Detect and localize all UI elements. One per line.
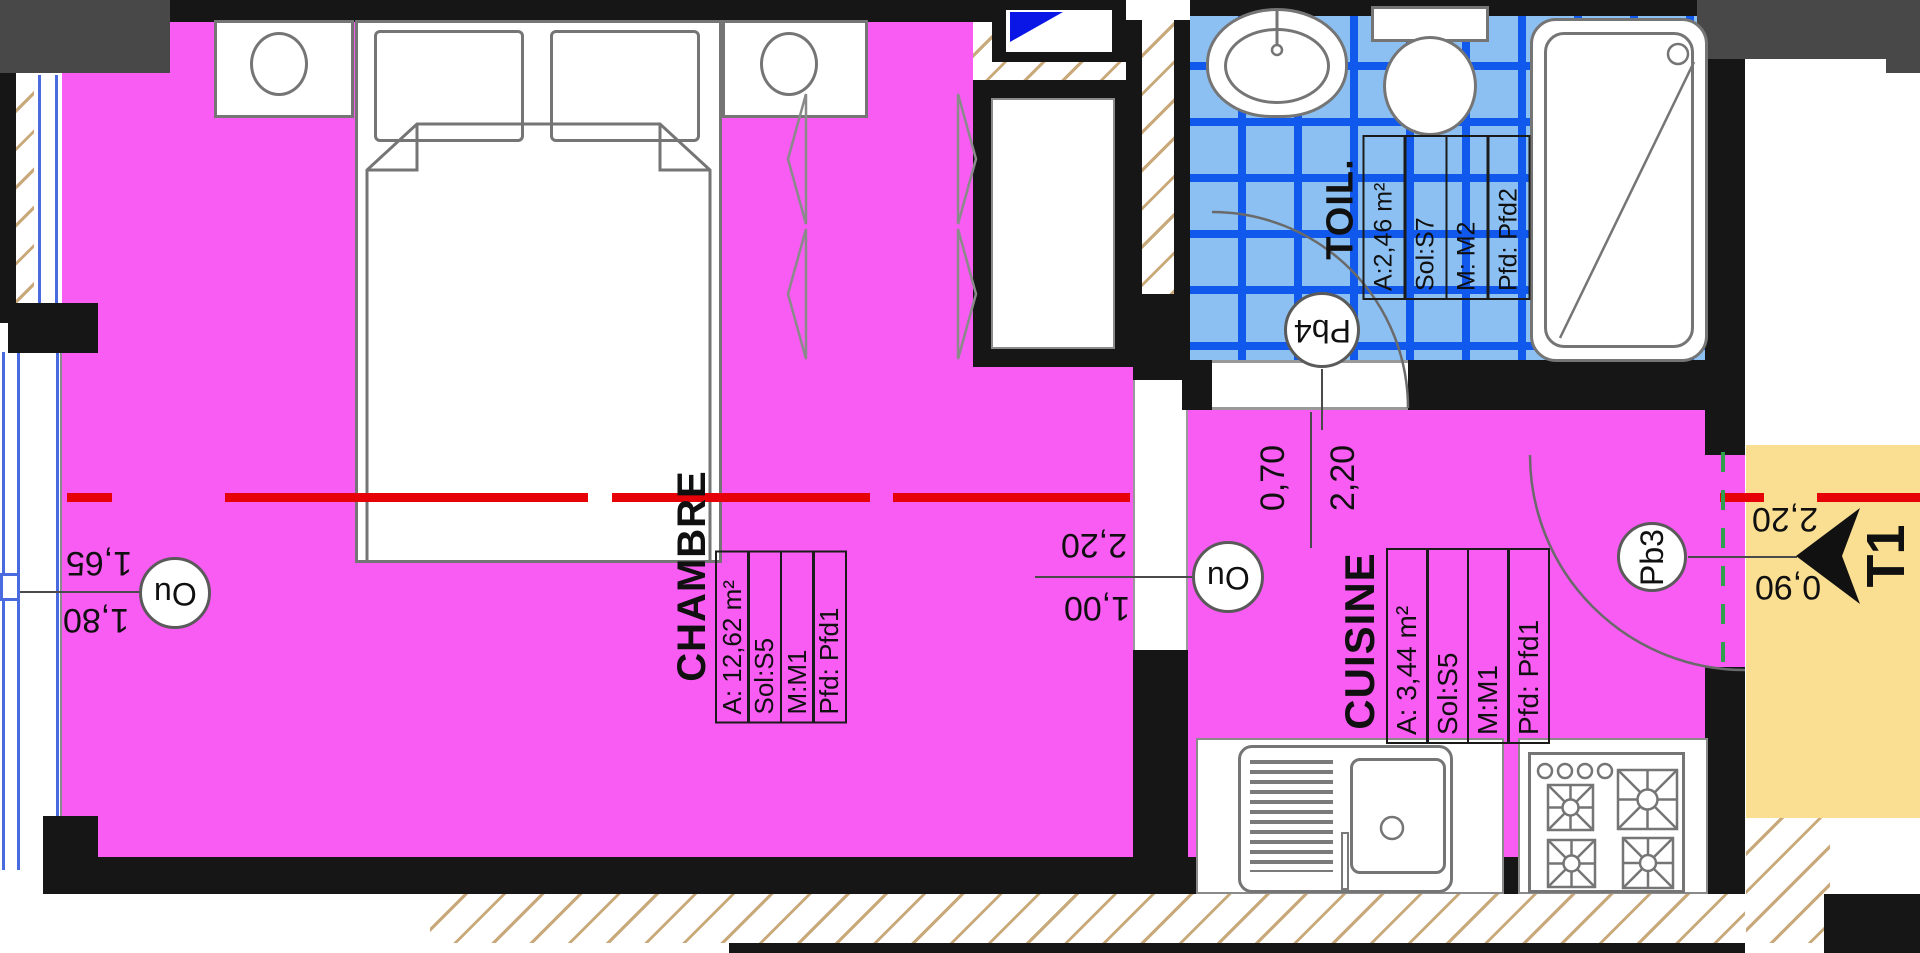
- marker-label: Ou: [1207, 559, 1250, 596]
- marker-label: Pb3: [1634, 529, 1671, 586]
- window-frame-line: [17, 352, 20, 870]
- wall-left-corner: [8, 303, 98, 353]
- marker-label: Pb4: [1294, 312, 1351, 349]
- door-axis-line: [1721, 452, 1725, 668]
- marker-pb4: Pb4: [1284, 292, 1360, 368]
- wall-top: [170, 0, 1006, 22]
- room-name: TOIL.: [1317, 118, 1364, 300]
- dimension-entrance-below: 0,90: [1747, 564, 1829, 610]
- room-plafond: Pfd: Pfd1: [812, 550, 847, 723]
- room-area: A: 3,44 m²: [1386, 548, 1429, 744]
- sink-drainboard: [1250, 760, 1333, 872]
- room-label-toilette: TOIL. A:2,46 m² Sol:S7 M: M2 Pfd: Pfd2: [1317, 118, 1540, 300]
- room-label-cuisine: CUISINE A: 3,44 m² Sol:S5 M:M1 Pfd: Pfd1: [1332, 538, 1560, 744]
- room-name: CUISINE: [1332, 538, 1388, 744]
- marker-label: Ou: [154, 575, 197, 612]
- wall-left-upper: [0, 73, 16, 323]
- wall-door-strip-lower: [1133, 650, 1188, 894]
- section-line: [225, 493, 588, 502]
- washbasin-bowl: [1224, 28, 1330, 104]
- floor-plan: Ou Ou Pb4 Pb3 1,65 1,80 2,20 1,00 0,70 2…: [0, 0, 1920, 953]
- dimension-door-toilette-right: 2,20: [1313, 410, 1373, 546]
- neighbor-block-corner-right: [1886, 0, 1920, 73]
- marker-pb3: Pb3: [1617, 522, 1687, 592]
- room-mur: M: M2: [1445, 135, 1489, 300]
- marker-ou-window: Ou: [139, 557, 211, 629]
- dimension-window-left-below: 1,80: [53, 598, 139, 642]
- room-area: A:2,46 m²: [1362, 135, 1406, 300]
- dimension-door-toilette-left: 0,70: [1243, 410, 1303, 546]
- pillow-right: [550, 30, 700, 142]
- room-plafond: Pfd: Pfd2: [1486, 135, 1530, 300]
- dimension-door-chambre-above: 2,20: [1050, 523, 1138, 567]
- room-area: A: 12,62 m²: [715, 550, 750, 723]
- door-opening-chambre: [1133, 380, 1188, 650]
- wall-bottom-right-corner: [1824, 894, 1920, 953]
- wall-toilette-bottom-right: [1408, 360, 1745, 410]
- neighbor-block-top-left: [0, 0, 170, 73]
- dimension-entrance-above: 2,20: [1744, 496, 1826, 542]
- pillow-left: [374, 30, 524, 142]
- hatch-right-band: [1746, 818, 1830, 943]
- stove: [1528, 752, 1685, 893]
- room-name: CHAMBRE: [667, 428, 717, 723]
- sink-faucet: [1341, 832, 1349, 890]
- section-line: [893, 493, 1130, 502]
- section-line: [67, 493, 112, 502]
- room-label-chambre: CHAMBRE A: 12,62 m² Sol:S5 M:M1 Pfd: Pfd…: [667, 428, 857, 723]
- room-plafond: Pfd: Pfd1: [1507, 548, 1550, 744]
- unit-label: T1: [1856, 500, 1916, 612]
- sink-basin: [1350, 758, 1446, 874]
- room-sol: Sol:S7: [1403, 135, 1447, 300]
- dimension-window-left-above: 1,65: [56, 541, 142, 585]
- window-frame-line: [38, 75, 41, 323]
- window-frame-line: [55, 75, 58, 323]
- room-mur: M:M1: [780, 550, 815, 723]
- duct-interior: [1006, 10, 1112, 52]
- marker-ou-door: Ou: [1192, 541, 1264, 613]
- wall-door-strip-upper: [1133, 294, 1188, 380]
- hatch-left-wall: [16, 75, 34, 318]
- wardrobe-interior: [991, 98, 1115, 349]
- room-sol: Sol:S5: [747, 550, 782, 723]
- lamp-icon: [250, 32, 308, 96]
- dimension-door-chambre-below: 1,00: [1053, 586, 1141, 630]
- wall-bottom-bar: [729, 943, 1745, 953]
- window-sill-marker: [0, 573, 20, 601]
- bathtub-inner: [1544, 32, 1694, 348]
- room-mur: M:M1: [1467, 548, 1510, 744]
- door-threshold-toilette: [1212, 360, 1408, 410]
- neighbor-block-top-right: [1697, 0, 1887, 59]
- room-sol: Sol:S5: [1426, 548, 1469, 744]
- hatch-bottom-band: [430, 894, 1745, 943]
- wall-right-lower: [1705, 667, 1745, 894]
- lamp-icon: [760, 32, 818, 96]
- window-frame-line: [2, 352, 5, 870]
